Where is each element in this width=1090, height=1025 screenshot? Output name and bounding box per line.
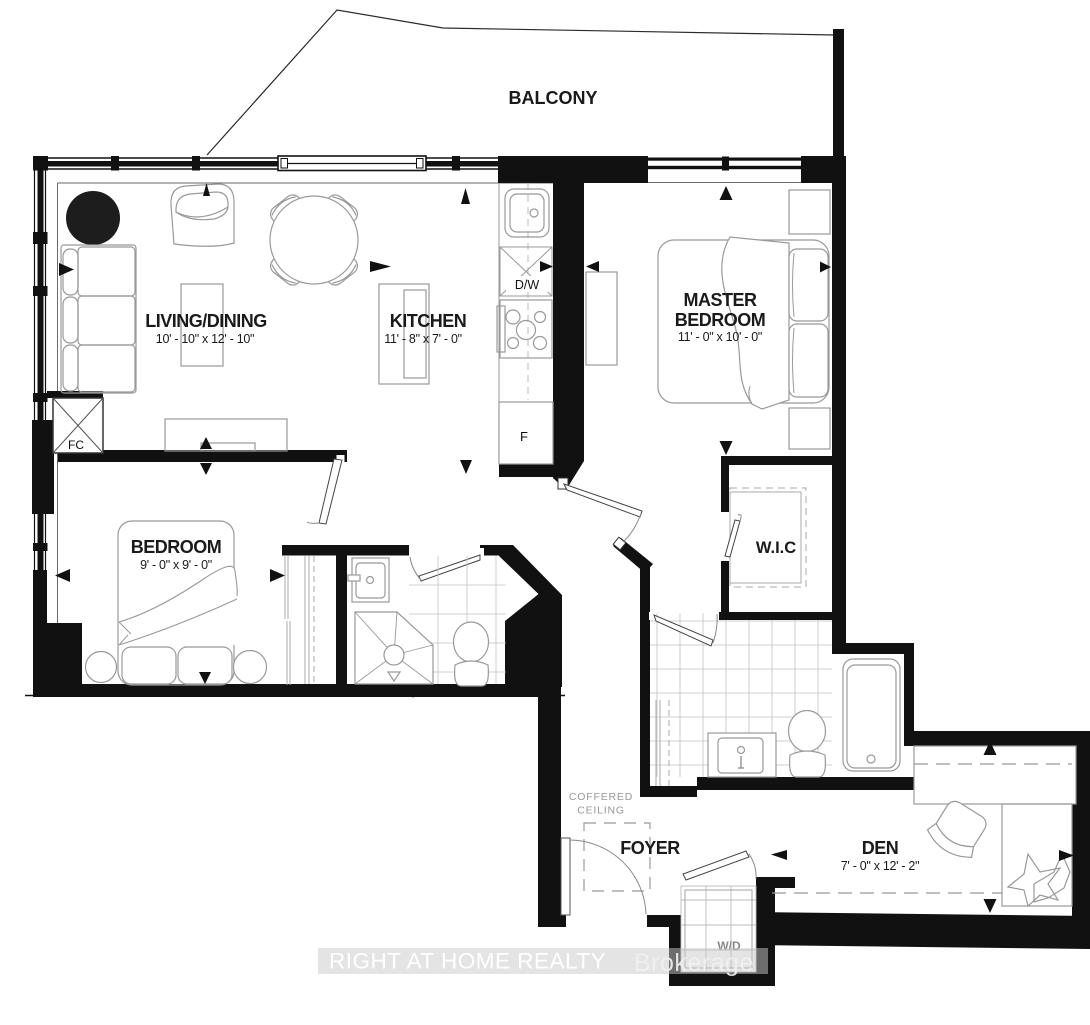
svg-text:RIGHT AT HOME REALTY: RIGHT AT HOME REALTY bbox=[329, 949, 606, 974]
svg-text:BALCONY: BALCONY bbox=[509, 88, 598, 108]
svg-text:COFFERED: COFFERED bbox=[569, 791, 633, 803]
svg-text:FC: FC bbox=[68, 438, 84, 452]
svg-text:W.I.C: W.I.C bbox=[756, 539, 796, 557]
svg-text:10' - 10" x 12' - 10": 10' - 10" x 12' - 10" bbox=[156, 332, 254, 346]
svg-text:F: F bbox=[520, 429, 528, 444]
svg-text:7' - 0" x 12' - 2": 7' - 0" x 12' - 2" bbox=[841, 859, 919, 873]
svg-text:DEN: DEN bbox=[862, 838, 899, 858]
svg-text:MASTER: MASTER bbox=[684, 290, 758, 310]
svg-text:D/W: D/W bbox=[515, 278, 540, 292]
svg-text:FOYER: FOYER bbox=[620, 838, 680, 858]
svg-text:Brokerage: Brokerage bbox=[634, 949, 754, 977]
svg-text:CEILING: CEILING bbox=[577, 805, 625, 817]
svg-text:BEDROOM: BEDROOM bbox=[675, 310, 766, 330]
svg-text:11' - 8" x 7' - 0": 11' - 8" x 7' - 0" bbox=[384, 332, 462, 346]
svg-text:LIVING/DINING: LIVING/DINING bbox=[145, 311, 267, 331]
svg-text:KITCHEN: KITCHEN bbox=[390, 311, 467, 331]
svg-text:11' - 0" x 10' - 0": 11' - 0" x 10' - 0" bbox=[678, 330, 762, 344]
svg-text:BEDROOM: BEDROOM bbox=[131, 537, 222, 557]
svg-text:9' - 0" x 9' - 0": 9' - 0" x 9' - 0" bbox=[140, 558, 212, 572]
